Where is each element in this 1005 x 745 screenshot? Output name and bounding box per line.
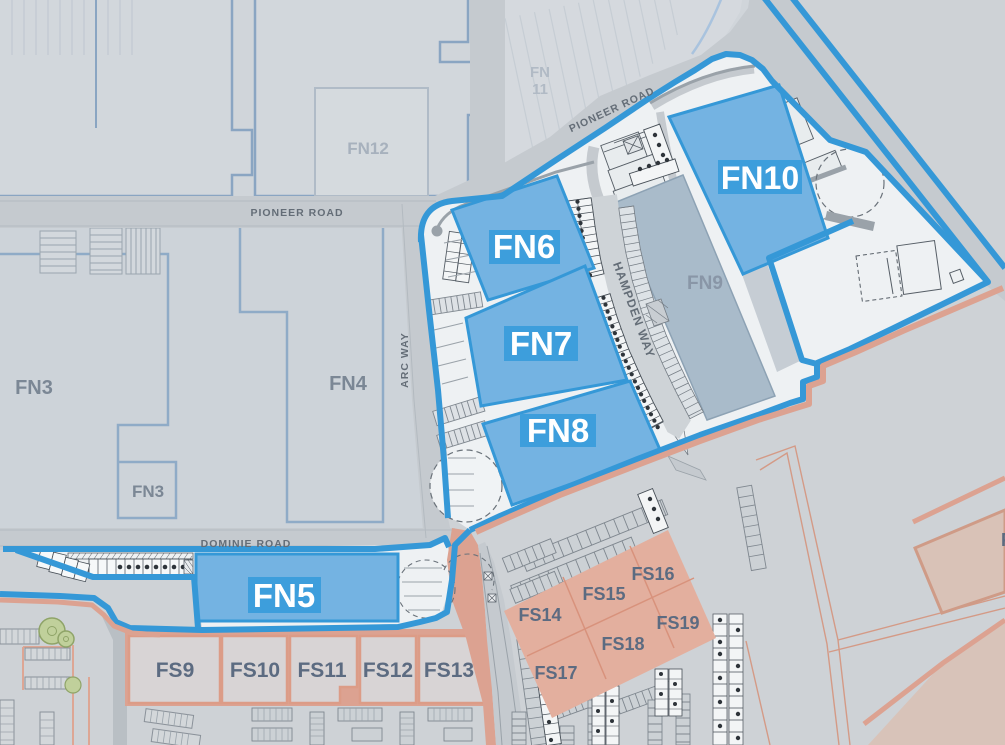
svg-text:11: 11 (532, 81, 548, 98)
svg-text:FS14: FS14 (518, 605, 561, 625)
svg-text:FN8: FN8 (527, 412, 589, 449)
svg-text:FS10: FS10 (230, 659, 280, 682)
svg-text:FS9: FS9 (156, 659, 195, 682)
svg-text:FS18: FS18 (601, 634, 644, 654)
svg-text:FS11: FS11 (297, 659, 346, 682)
svg-text:FN5: FN5 (253, 577, 315, 614)
svg-text:FN4: FN4 (329, 373, 368, 395)
svg-text:ARC WAY: ARC WAY (399, 332, 411, 388)
svg-text:DOMINIE ROAD: DOMINIE ROAD (201, 538, 292, 550)
svg-text:FN3: FN3 (15, 377, 53, 399)
svg-text:FS17: FS17 (534, 663, 577, 683)
svg-text:FN12: FN12 (347, 139, 389, 158)
svg-text:FS13: FS13 (424, 659, 474, 682)
svg-text:FN9: FN9 (687, 273, 723, 294)
svg-text:FN10: FN10 (721, 160, 799, 196)
svg-text:FN7: FN7 (510, 325, 572, 362)
svg-text:PIONEER ROAD: PIONEER ROAD (250, 207, 343, 219)
svg-text:FS16: FS16 (631, 564, 674, 584)
svg-text:FN6: FN6 (493, 228, 555, 265)
svg-text:F: F (1001, 530, 1005, 550)
svg-text:FS15: FS15 (582, 584, 625, 604)
svg-text:FS12: FS12 (363, 659, 413, 682)
svg-text:FS19: FS19 (656, 613, 699, 633)
svg-text:FN: FN (530, 64, 550, 81)
svg-text:FN3: FN3 (132, 482, 164, 501)
